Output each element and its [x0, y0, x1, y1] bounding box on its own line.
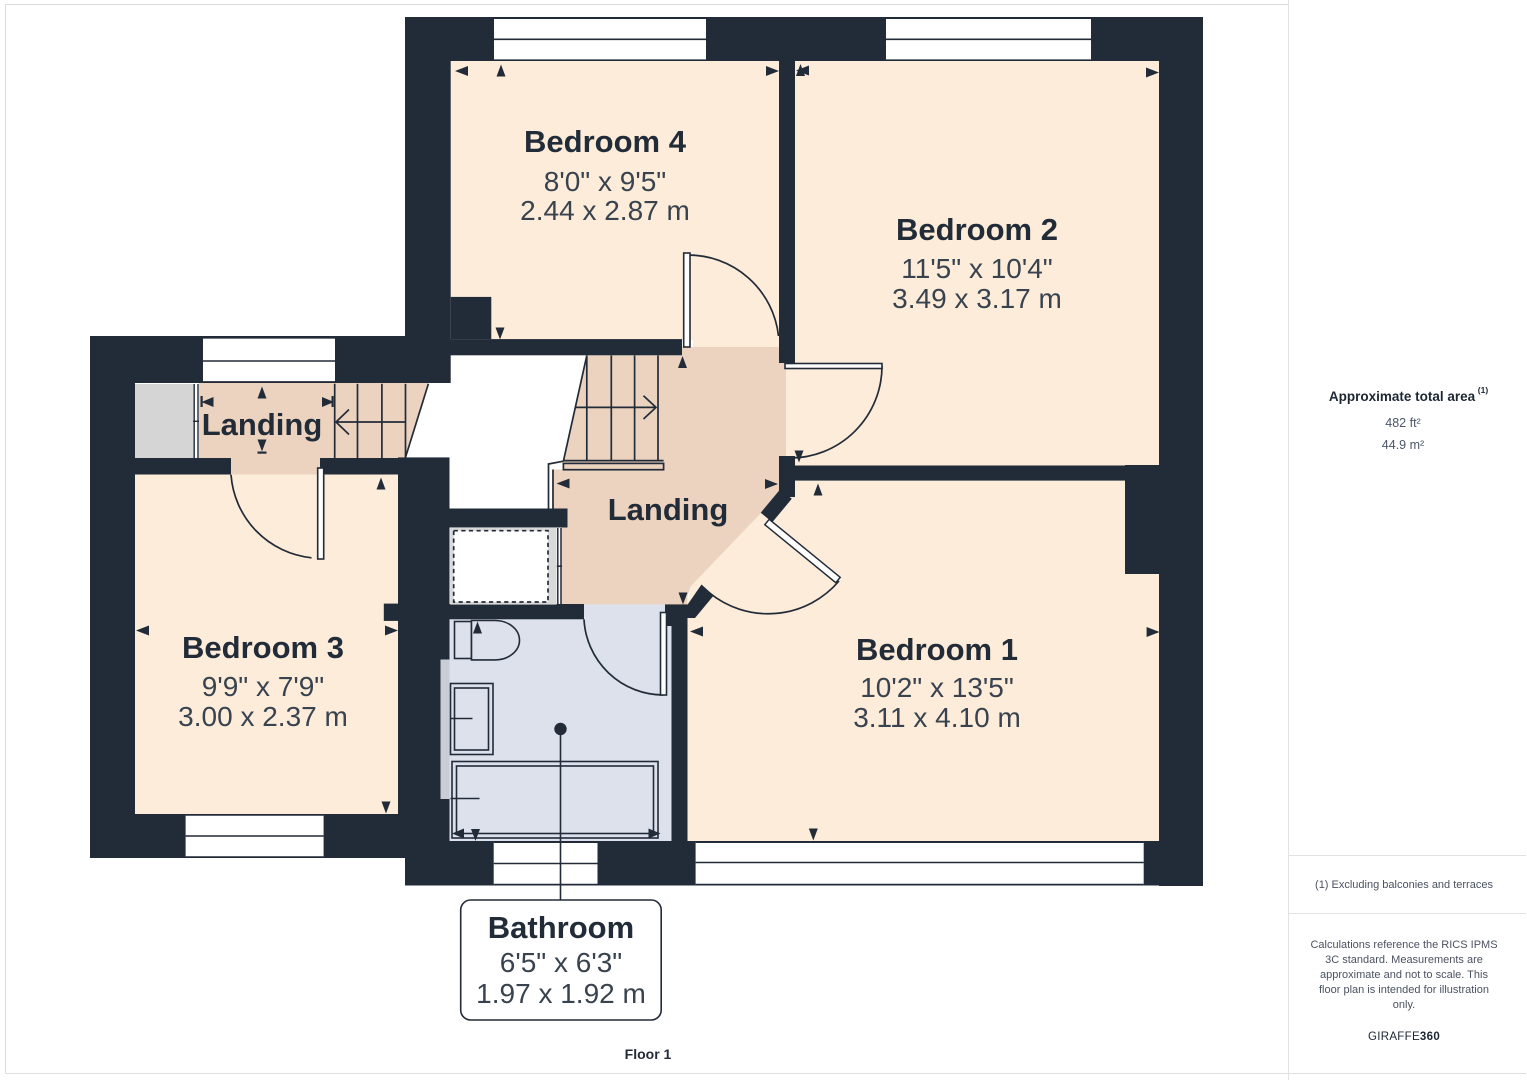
svg-text:Landing: Landing [608, 492, 729, 527]
svg-text:3.49 x 3.17 m: 3.49 x 3.17 m [892, 283, 1062, 314]
svg-text:Bathroom: Bathroom [488, 910, 634, 945]
svg-text:6'5" x 6'3": 6'5" x 6'3" [500, 947, 622, 978]
svg-text:44.9 m²: 44.9 m² [1382, 438, 1424, 452]
svg-text:GIRAFFE360: GIRAFFE360 [1368, 1031, 1440, 1043]
svg-text:(1): (1) [1478, 385, 1489, 395]
svg-text:3C standard. Measurements are: 3C standard. Measurements are [1325, 954, 1483, 966]
svg-text:2.44 x 2.87 m: 2.44 x 2.87 m [520, 195, 690, 226]
svg-text:482 ft²: 482 ft² [1385, 416, 1420, 430]
svg-text:only.: only. [1393, 999, 1415, 1011]
svg-text:11'5" x 10'4": 11'5" x 10'4" [901, 253, 1052, 284]
svg-text:Bedroom 2: Bedroom 2 [896, 212, 1058, 247]
svg-text:Landing: Landing [202, 407, 323, 442]
svg-text:8'0" x 9'5": 8'0" x 9'5" [544, 166, 666, 197]
svg-text:Bedroom 4: Bedroom 4 [524, 124, 687, 159]
svg-text:floor plan is intended for ill: floor plan is intended for illustration [1319, 984, 1489, 996]
svg-text:Bedroom 1: Bedroom 1 [856, 632, 1018, 667]
svg-text:3.00 x 2.37 m: 3.00 x 2.37 m [178, 701, 348, 732]
svg-text:3.11 x 4.10 m: 3.11 x 4.10 m [853, 702, 1021, 733]
svg-text:approximate and not to scale.: approximate and not to scale. This [1320, 969, 1488, 981]
svg-text:Approximate total area: Approximate total area [1329, 389, 1476, 404]
svg-text:Floor 1: Floor 1 [625, 1046, 672, 1062]
svg-text:1.97 x 1.92 m: 1.97 x 1.92 m [476, 978, 646, 1009]
svg-text:(1) Excluding balconies and te: (1) Excluding balconies and terraces [1315, 879, 1493, 891]
svg-text:Bedroom 3: Bedroom 3 [182, 630, 344, 665]
svg-text:Calculations reference the RIC: Calculations reference the RICS IPMS [1310, 939, 1497, 951]
svg-text:9'9" x 7'9": 9'9" x 7'9" [202, 671, 324, 702]
svg-text:10'2" x 13'5": 10'2" x 13'5" [860, 672, 1014, 703]
